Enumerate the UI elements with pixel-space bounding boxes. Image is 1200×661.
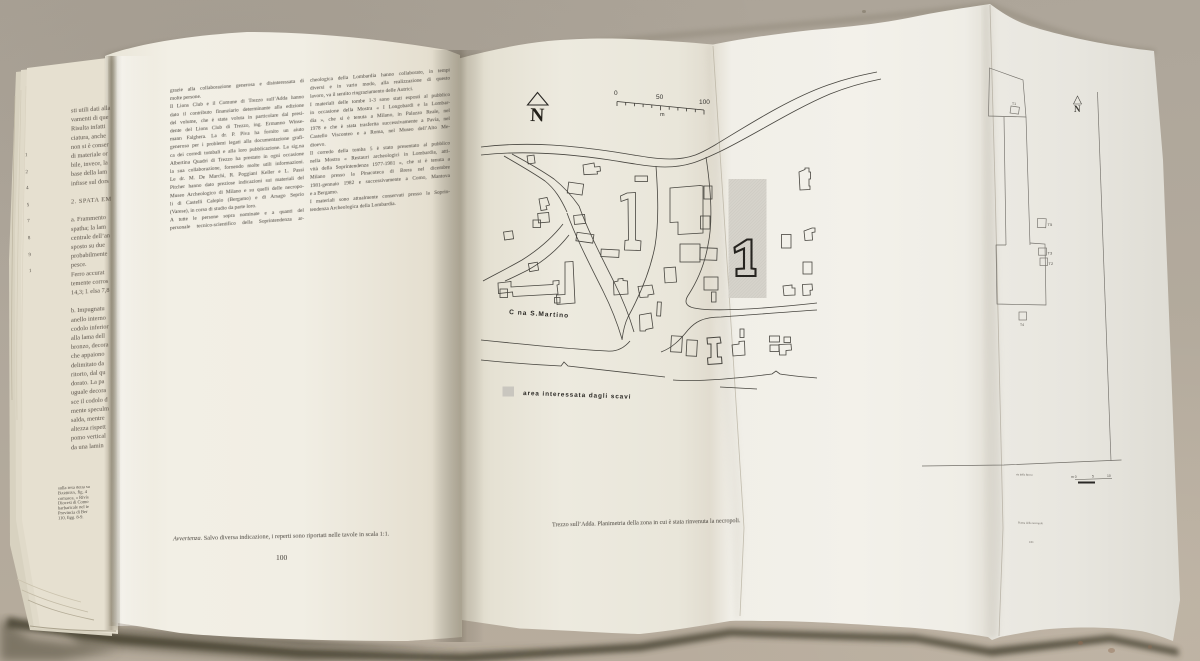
svg-text:5: 5 <box>1092 475 1094 479</box>
svg-text:50: 50 <box>656 94 664 101</box>
svg-text:C na S.Martino: C na S.Martino <box>509 309 569 320</box>
svg-text:T5: T5 <box>1048 222 1053 227</box>
svg-text:T4: T4 <box>1020 323 1024 327</box>
svg-text:0: 0 <box>614 90 618 97</box>
svg-text:100: 100 <box>699 99 710 106</box>
svg-text:N: N <box>1074 104 1081 114</box>
svg-text:T3: T3 <box>1048 251 1053 256</box>
svg-text:N: N <box>530 105 545 126</box>
svg-text:T2: T2 <box>1049 261 1054 266</box>
svg-text:m: m <box>660 112 665 118</box>
svg-text:T1: T1 <box>1012 102 1016 106</box>
svg-text:m 0: m 0 <box>1071 475 1077 479</box>
svg-text:area interessata dagli scavi: area interessata dagli scavi <box>523 390 632 401</box>
svg-text:10: 10 <box>1107 474 1111 478</box>
